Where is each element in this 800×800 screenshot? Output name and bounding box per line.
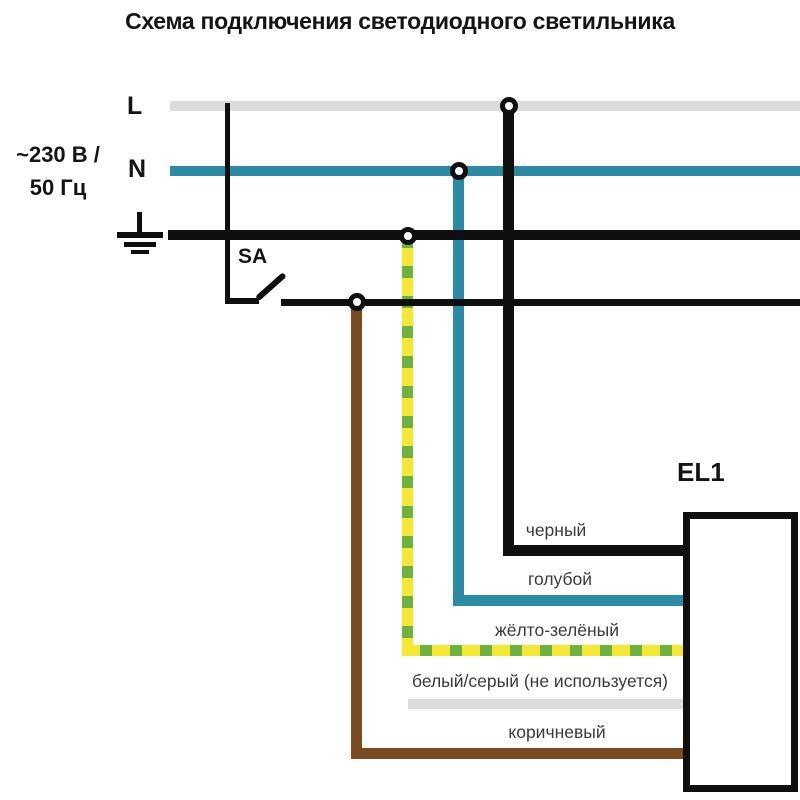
wiring-diagram: Схема подключения светодиодного светильн… — [0, 0, 800, 800]
switch-feed-wire — [225, 103, 230, 304]
wire-brown-vertical — [351, 302, 362, 759]
supply-frequency: 50 Гц — [0, 171, 116, 204]
switch-blade-icon — [255, 272, 287, 301]
ground-bar — [117, 232, 163, 238]
junction-dot-pe — [399, 227, 417, 245]
wire-label-black: черный — [526, 520, 587, 541]
ground-bar — [131, 250, 149, 254]
switch-label: SA — [238, 245, 267, 269]
wire-label-white-gray: белый/серый (не используется) — [412, 671, 668, 692]
bus-line-pe — [168, 230, 800, 240]
wire-label-brown: коричневый — [508, 722, 605, 743]
wire-blue-horizontal — [453, 595, 683, 606]
junction-dot-phase — [500, 97, 518, 115]
supply-rating: ~230 В / 50 Гц — [0, 138, 116, 204]
bus-line-neutral — [170, 166, 800, 176]
phase-label: L — [127, 92, 142, 121]
junction-dot-switch — [348, 293, 366, 311]
junction-dot-neutral — [450, 162, 468, 180]
supply-voltage: ~230 В / — [0, 138, 116, 171]
wire-black-horizontal — [503, 545, 683, 556]
neutral-label: N — [128, 155, 146, 184]
wire-label-blue: голубой — [528, 569, 592, 590]
wire-label-yellow-green: жёлто-зелёный — [495, 620, 619, 641]
ground-bar — [124, 242, 156, 247]
bus-line-phase — [170, 101, 800, 111]
diagram-title: Схема подключения светодиодного светильн… — [0, 8, 800, 35]
wire-brown-horizontal — [351, 748, 683, 759]
wire-yellow-green-horizontal — [402, 645, 683, 656]
switch-contact-stub — [225, 298, 259, 304]
wire-black-vertical — [503, 101, 514, 556]
luminaire-box — [683, 512, 798, 792]
wire-white-gray-stub — [408, 699, 683, 709]
luminaire-label: EL1 — [677, 457, 725, 488]
